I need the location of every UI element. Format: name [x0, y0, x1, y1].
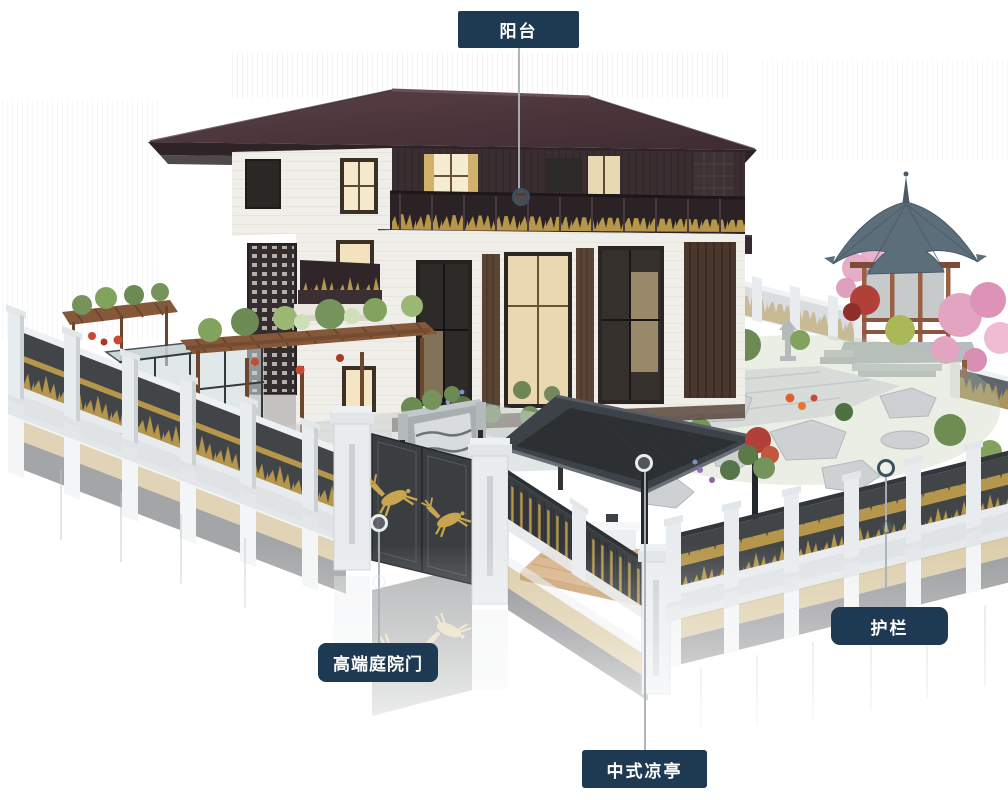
window-3 — [598, 246, 664, 404]
marker-dot — [877, 459, 895, 477]
callout-label: 护栏 — [831, 607, 948, 645]
fade-overlay — [0, 545, 1008, 800]
window-4 — [684, 242, 736, 398]
marker-dot-ghost — [372, 575, 386, 589]
balcony — [390, 192, 745, 234]
villa-scene-illustration — [0, 0, 1008, 800]
marker-dot — [370, 514, 388, 532]
marker-dot — [635, 454, 653, 472]
leader-line — [518, 48, 520, 189]
callout-label: 中式凉亭 — [582, 750, 707, 788]
leader-line — [885, 477, 887, 607]
leader-line — [644, 472, 646, 750]
window-2 — [504, 252, 572, 408]
marker-dot — [512, 188, 530, 206]
callout-label: 阳台 — [458, 11, 579, 48]
marker-dot-ghost — [880, 520, 894, 534]
callout-label: 高端庭院门 — [318, 643, 438, 682]
annotated-villa-rendering: 阳台 高端庭院门 中式凉亭 护栏 — [0, 0, 1008, 800]
